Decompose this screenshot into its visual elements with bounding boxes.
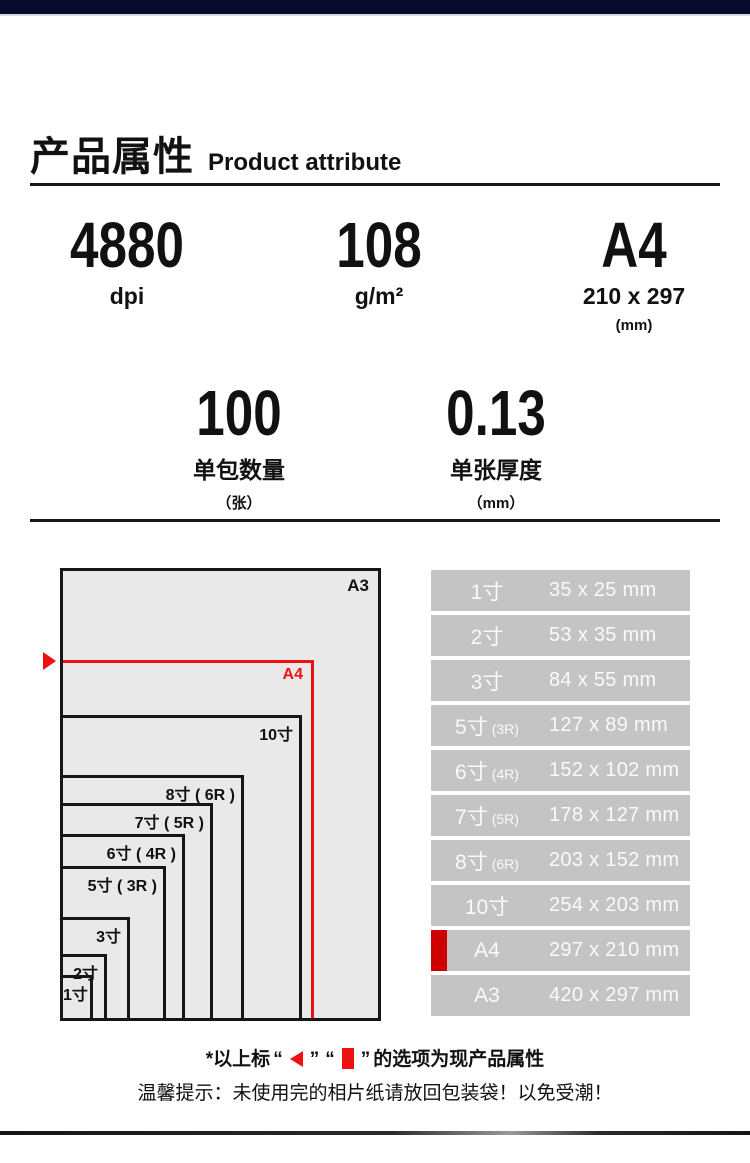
spec-value: 4880 bbox=[70, 216, 184, 275]
size-value: 254 x 203 mm bbox=[549, 894, 679, 917]
legend-note-prefix: *以上标 bbox=[206, 1049, 270, 1070]
legend-triangle-icon bbox=[290, 1051, 303, 1067]
size-label-suffix: (5R) bbox=[492, 811, 519, 827]
paper-size-box-label: 8寸 ( 6R ) bbox=[63, 778, 241, 805]
spec-pack-quantity: 100 单包数量 （张） bbox=[186, 384, 293, 513]
size-value: 152 x 102 mm bbox=[549, 759, 679, 782]
quote-open: “ bbox=[273, 1049, 283, 1070]
page-title-cn: 产品属性 bbox=[30, 124, 194, 182]
quote-close: ” bbox=[361, 1049, 371, 1070]
spec-weight: 108 g/m² bbox=[326, 216, 433, 310]
top-banner bbox=[0, 0, 750, 14]
spec-sheet-thickness: 0.13 单张厚度 （mm） bbox=[434, 384, 559, 513]
legend-bar-icon bbox=[342, 1048, 354, 1069]
spec-unit: dpi bbox=[56, 283, 198, 310]
paper-size-box: 1寸 bbox=[63, 975, 93, 1018]
legend-note-suffix: 的选项为现产品属性 bbox=[373, 1049, 544, 1070]
size-table: 1寸35 x 25 mm2寸53 x 35 mm3寸84 x 55 mm5寸(3… bbox=[431, 570, 690, 1020]
size-table-row: 6寸(4R)152 x 102 mm bbox=[431, 750, 690, 791]
spec-value: 100 bbox=[196, 384, 281, 443]
size-table-row: 5寸(3R)127 x 89 mm bbox=[431, 705, 690, 746]
size-label: 7寸 bbox=[455, 801, 488, 831]
size-label: A4 bbox=[474, 939, 500, 963]
size-label: 1寸 bbox=[471, 576, 504, 606]
size-label-suffix: (6R) bbox=[492, 856, 519, 872]
paper-size-box-label: 7寸 ( 5R ) bbox=[63, 806, 210, 833]
size-value: 127 x 89 mm bbox=[549, 714, 668, 737]
size-label: A3 bbox=[474, 984, 500, 1008]
size-table-row: 8寸(6R)203 x 152 mm bbox=[431, 840, 690, 881]
spec-paper-size: A4 210 x 297 (mm) bbox=[583, 216, 685, 334]
paper-size-box-label: 3寸 bbox=[63, 920, 127, 947]
size-value: 297 x 210 mm bbox=[549, 939, 679, 962]
diagram-outer-label: A3 bbox=[347, 576, 369, 596]
warm-tip: 温馨提示：未使用完的相片纸请放回包装袋！以免受潮！ bbox=[0, 1078, 750, 1105]
section-header: 产品属性 Product attribute bbox=[30, 124, 401, 182]
divider-top bbox=[30, 183, 720, 186]
paper-size-box-label: 10寸 bbox=[63, 718, 299, 745]
spec-unit: g/m² bbox=[326, 283, 433, 310]
spec-value: A4 bbox=[593, 216, 675, 275]
paper-size-box-label: 5寸 ( 3R ) bbox=[63, 869, 163, 896]
legend-note: *以上标“”“”的选项为现产品属性 bbox=[0, 1044, 750, 1071]
size-label: 3寸 bbox=[471, 666, 504, 696]
size-value: 420 x 297 mm bbox=[549, 984, 679, 1007]
spec-value: 108 bbox=[336, 216, 421, 275]
size-table-row: A4297 x 210 mm bbox=[431, 930, 690, 971]
spec-sub-unit: （张） bbox=[186, 492, 293, 513]
spec-unit: 单张厚度 bbox=[434, 451, 559, 485]
size-label-suffix: (4R) bbox=[492, 766, 519, 782]
size-label-suffix: (3R) bbox=[492, 721, 519, 737]
spec-unit: 210 x 297 bbox=[583, 283, 685, 310]
paper-size-box-label: 1寸 bbox=[63, 978, 90, 1005]
paper-size-box-label: 6寸 ( 4R ) bbox=[63, 837, 182, 864]
size-label: 2寸 bbox=[471, 621, 504, 651]
top-banner-underline bbox=[0, 14, 750, 16]
paper-size-box-label: A4 bbox=[63, 663, 311, 684]
size-table-row: 7寸(5R)178 x 127 mm bbox=[431, 795, 690, 836]
selected-row-marker bbox=[431, 930, 447, 971]
size-value: 84 x 55 mm bbox=[549, 669, 656, 692]
quote-close: ” bbox=[310, 1049, 320, 1070]
size-value: 203 x 152 mm bbox=[549, 849, 679, 872]
size-table-row: 3寸84 x 55 mm bbox=[431, 660, 690, 701]
size-table-row: 1寸35 x 25 mm bbox=[431, 570, 690, 611]
spec-sub-unit: （mm） bbox=[434, 492, 559, 513]
page-title-en: Product attribute bbox=[208, 149, 401, 177]
quote-open: “ bbox=[325, 1049, 335, 1070]
size-table-row: A3420 x 297 mm bbox=[431, 975, 690, 1016]
spec-resolution: 4880 dpi bbox=[56, 216, 198, 310]
bottom-divider bbox=[0, 1131, 750, 1135]
size-value: 178 x 127 mm bbox=[549, 804, 679, 827]
size-table-row: 2寸53 x 35 mm bbox=[431, 615, 690, 656]
spec-value: 0.13 bbox=[446, 384, 546, 443]
size-label: 5寸 bbox=[455, 711, 488, 741]
size-label: 10寸 bbox=[465, 891, 509, 921]
size-table-row: 10寸254 x 203 mm bbox=[431, 885, 690, 926]
paper-size-diagram: A3 A410寸8寸 ( 6R )7寸 ( 5R )6寸 ( 4R )5寸 ( … bbox=[60, 568, 381, 1021]
product-attribute-page: 产品属性 Product attribute 4880 dpi 108 g/m²… bbox=[0, 0, 750, 1163]
spec-sub-unit: (mm) bbox=[583, 317, 685, 334]
size-label: 6寸 bbox=[455, 756, 488, 786]
size-label: 8寸 bbox=[455, 846, 488, 876]
selected-size-triangle-icon bbox=[43, 652, 56, 670]
size-value: 35 x 25 mm bbox=[549, 579, 656, 602]
divider-middle bbox=[30, 519, 720, 522]
spec-unit: 单包数量 bbox=[186, 451, 293, 485]
size-value: 53 x 35 mm bbox=[549, 624, 656, 647]
